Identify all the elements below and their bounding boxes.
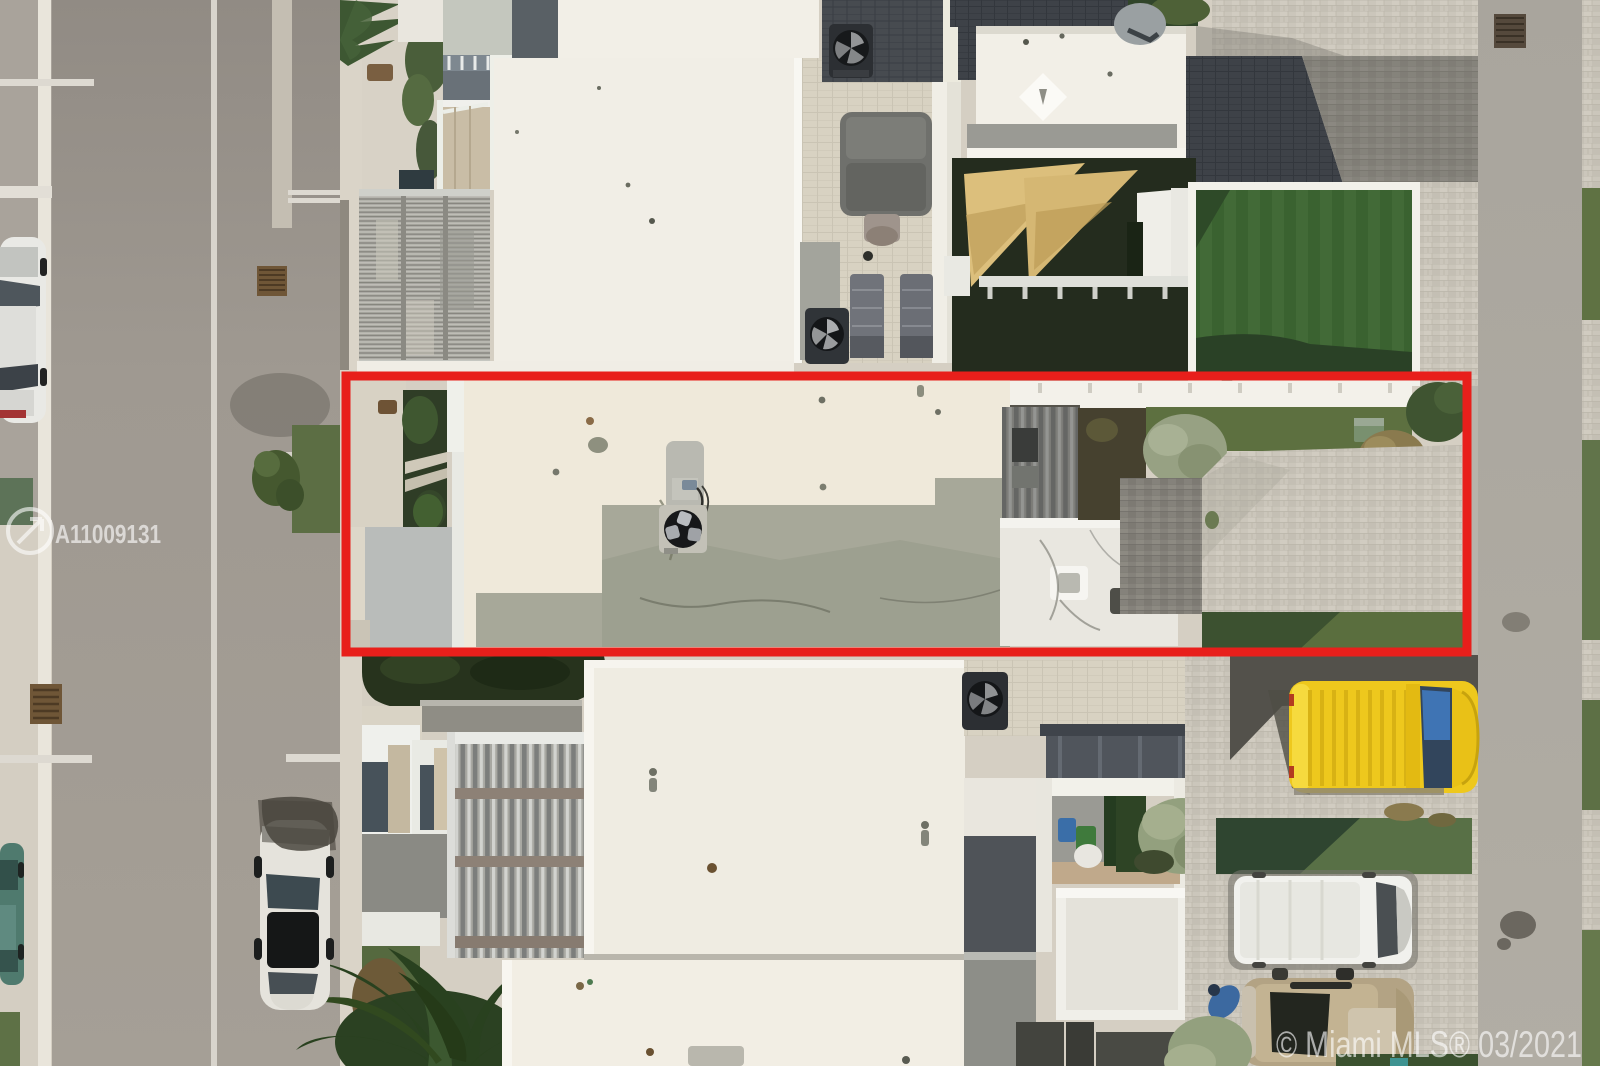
svg-text:A11009131: A11009131	[55, 519, 161, 549]
svg-text:© Miami MLS® 03/2021: © Miami MLS® 03/2021	[1276, 1024, 1582, 1065]
